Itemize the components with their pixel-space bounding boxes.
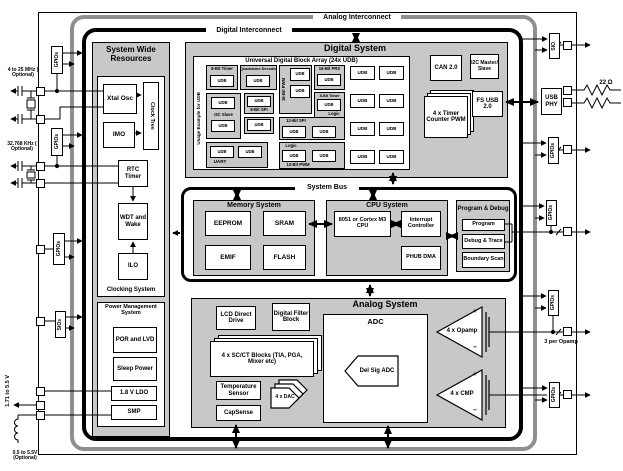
psoc-block-diagram: Analog Interconnect Digital Interconnect… — [0, 0, 623, 471]
gpio-right-3: GPIOs — [548, 290, 559, 316]
udb-block: UDB — [379, 122, 404, 136]
temperature-sensor-block: Temperature Sensor — [216, 381, 261, 400]
gpio-left-3: GPIOs — [53, 233, 65, 265]
clock-tree-label: Clock Tree — [148, 102, 154, 130]
pin-gpio-right-1 — [563, 145, 572, 154]
udb-block: UDB — [290, 68, 310, 81]
dac-label: 4 x DAC — [271, 393, 299, 402]
udb-block: UDB — [246, 75, 270, 87]
udb-block: UDB — [247, 119, 271, 131]
pin-xtal-mhz-a — [36, 87, 45, 96]
memory-system-title: Memory System — [193, 201, 315, 210]
digital-system-title: Digital System — [295, 44, 415, 54]
wdt-wake-block: WDT and Wake — [118, 203, 148, 240]
vdd-label: 1.71 to 5.5 V — [2, 372, 16, 410]
xtal-mhz-label: 4 to 25 MHz ( Optional) — [2, 66, 44, 80]
xtal-osc-block: Xtal Osc — [103, 84, 137, 114]
system-wide-resources-title: System Wide Resources — [93, 45, 169, 65]
udb-block: UDB — [282, 126, 306, 138]
opamp-plus: + — [470, 308, 480, 316]
gpio-right-1: GPIOs — [548, 137, 559, 164]
gpio-right-4: GPIOs — [549, 382, 560, 408]
phub-dma-block: PHUB DMA — [401, 246, 441, 270]
flash-block: FLASH — [263, 245, 306, 270]
udb-block: UDB — [210, 75, 234, 87]
udb-group-16bit-prs-label: 16-Bit PRS — [314, 66, 345, 72]
gpio-left-2: GPIOs — [51, 128, 63, 156]
udb-group-8bit-timer-label: 8-Bit Timer — [206, 66, 238, 72]
udb-block: UDB — [379, 94, 404, 108]
power-management-title: Power Management System — [99, 304, 163, 317]
ldo-block: 1.8 V LDO — [111, 386, 157, 401]
udb-block: UDB — [379, 66, 404, 80]
udb-block: UDB — [282, 150, 306, 162]
scct-blocks: 4 x SC/CT Blocks (TIA, PGA, Mixer etc) — [210, 341, 314, 377]
udb-array-title: Universal Digital Block Array (24x UDB) — [195, 57, 408, 65]
udb-block: UDB — [211, 97, 235, 109]
udb-block: UDB — [350, 94, 375, 108]
udb-block: UDB — [317, 99, 341, 111]
pin-vdd — [36, 387, 45, 396]
xtal-khz-label: 32.768 KHz ( Optional) — [2, 140, 42, 154]
boost-label: 0.5 to 5.5V (Optional) — [2, 448, 48, 464]
cpu-system-title: CPU System — [326, 201, 448, 210]
pin-opamp — [563, 327, 572, 336]
cmp-plus: + — [470, 371, 480, 379]
udb-block: UDB — [238, 146, 262, 158]
pin-usb-dminus — [563, 98, 572, 107]
sio-left: SIOs — [55, 311, 66, 338]
cmp-label: 4 x CMP — [442, 384, 482, 404]
pin-gpio-left-3 — [36, 245, 45, 254]
udb-block: UDB — [210, 146, 234, 158]
imo-block: IMO — [103, 122, 135, 148]
pin-xtal-khz-b — [36, 179, 45, 188]
i2c-master-block: I2C Master/ Slave — [470, 54, 499, 79]
gpio-right-2: GPIOs — [546, 200, 557, 226]
sleep-power-block: Sleep Power — [113, 357, 157, 381]
analog-system-title: Analog System — [340, 300, 430, 310]
pin-cmp — [563, 390, 572, 399]
digital-filter-block: Digital Filter Block — [272, 303, 310, 331]
udb-group-i2c-slave-label: I2C Slave — [206, 112, 241, 118]
udb-group-logic-b-label: Logic — [281, 143, 301, 149]
udb-group-16bit-pwm-label: 16-Bit PWM — [280, 67, 289, 112]
delsig-adc-label: Del Sig ADC — [358, 360, 396, 382]
opamp-minus: − — [470, 344, 480, 352]
udb-group-uart-label: UART — [207, 159, 233, 166]
smp-block: SMP — [111, 405, 157, 420]
debug-trace-block: Debug & Trace — [462, 234, 505, 249]
pin-xtal-khz-a — [36, 162, 45, 171]
digital-interconnect-label: Digital Interconnect — [206, 26, 292, 35]
capsense-block: CapSense — [216, 405, 261, 421]
lcd-direct-drive-block: LCD Direct Drive — [216, 306, 256, 330]
timer-counter-pwm-block: 4 x Timer Counter PWM — [424, 96, 468, 138]
system-bus-label: System Bus — [295, 183, 359, 192]
ilo-block: ILO — [118, 253, 148, 280]
per-opamp-label: 3 per Opamp — [544, 336, 578, 350]
sio-right: SIO — [549, 33, 560, 59]
pin-boost — [36, 411, 45, 420]
adc-label: ADC — [323, 318, 428, 327]
can-block: CAN 2.0 — [430, 55, 462, 81]
sram-block: SRAM — [263, 211, 306, 236]
clocking-system-label: Clocking System — [99, 286, 163, 294]
rtc-timer-block: RTC Timer — [118, 160, 148, 187]
udb-block: UDB — [312, 126, 336, 138]
udb-group-quadrature-label: Quadrature Decoder — [240, 66, 277, 72]
pin-xtal-mhz-b — [36, 115, 45, 124]
boundary-scan-block: Boundary Scan — [462, 252, 505, 268]
udb-block: UDB — [317, 74, 341, 86]
pin-vddio — [36, 401, 45, 410]
pin-usb-dplus — [563, 86, 572, 95]
usb-resistor-label: 22 Ω — [591, 79, 621, 88]
udb-block: UDB — [247, 96, 271, 107]
udb-block: UDB — [211, 120, 235, 132]
program-debug-title: Program & Debug — [456, 201, 510, 217]
gpio-left-1: GPIOs — [51, 46, 63, 74]
udb-group-8bit-spi-label: 8-Bit SPI — [244, 108, 274, 113]
eeprom-block: EEPROM — [205, 211, 251, 236]
analog-interconnect-label: Analog Interconnect — [313, 13, 401, 22]
udb-group-12bit-pwm-label: 12-Bit PWM — [280, 163, 316, 168]
udb-usage-label: Usage Example for UDB — [194, 70, 204, 166]
cmp-minus: − — [470, 407, 480, 415]
emif-block: EMIF — [205, 245, 251, 270]
udb-block: UDB — [379, 150, 404, 164]
udb-block: UDB — [350, 122, 375, 136]
clock-tree-block: Clock Tree — [143, 82, 159, 150]
cpu-core-block: 8051 or Cortex M3 CPU — [334, 211, 391, 237]
opamp-label: 4 x Opamp — [442, 321, 482, 341]
program-block: Program — [462, 219, 505, 231]
udb-block: UDB — [312, 150, 336, 162]
udb-block: UDB — [350, 66, 375, 80]
pin-sio-right — [563, 41, 572, 50]
interrupt-controller-block: Interrupt Controller — [401, 211, 441, 237]
udb-block: UDB — [290, 85, 310, 98]
por-lvd-block: POR and LVD — [113, 327, 157, 353]
fs-usb-block: FS USB 2.0 — [472, 91, 503, 117]
pin-sio-left — [36, 317, 45, 326]
udb-group-12bit-spi-label: 12-Bit SPI — [280, 118, 312, 124]
pin-debug — [563, 227, 572, 236]
udb-block: UDB — [350, 150, 375, 164]
usb-phy-block: USB PHY — [541, 88, 562, 115]
